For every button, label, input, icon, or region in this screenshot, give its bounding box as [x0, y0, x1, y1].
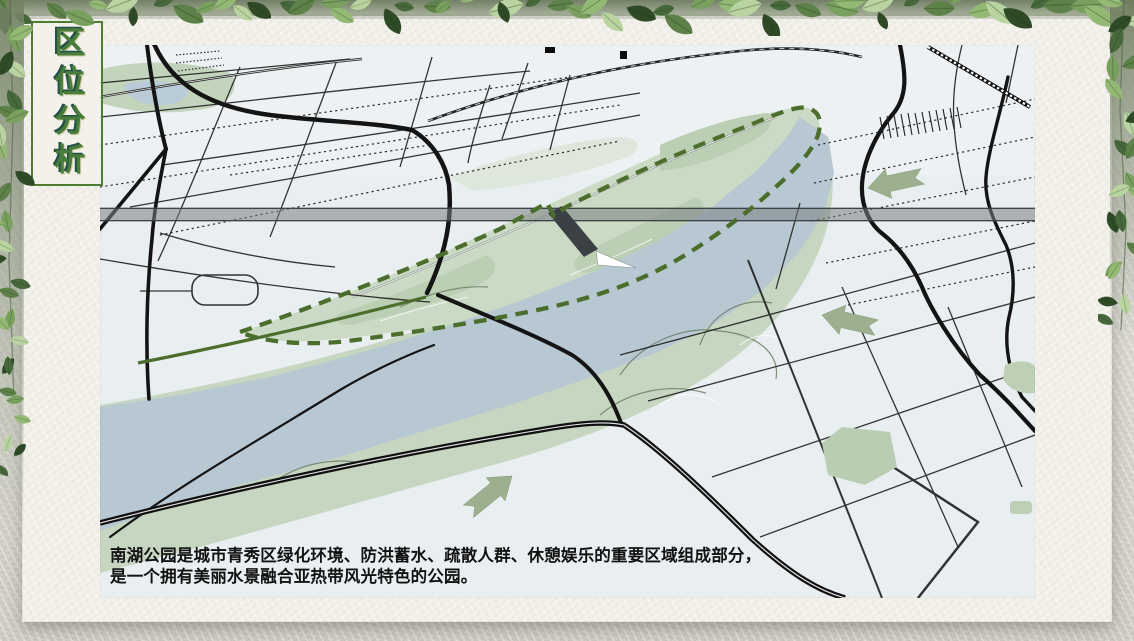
caption: 南湖公园是城市青秀区绿化环境、防洪蓄水、疏散人群、休憩娱乐的重要区域组成部分， … [110, 546, 800, 587]
title-box: 区位分析 [31, 21, 103, 186]
building-block [545, 47, 555, 53]
slide: 南湖公园是城市青秀区绿化环境、防洪蓄水、疏散人群、休憩娱乐的重要区域组成部分， … [0, 0, 1134, 641]
page-title: 区位分析 [45, 26, 90, 182]
caption-line-2: 是一个拥有美丽水景融合亚热带风光特色的公园。 [110, 567, 800, 588]
city-map: 南湖公园是城市青秀区绿化环境、防洪蓄水、疏散人群、休憩娱乐的重要区域组成部分， … [100, 45, 1035, 598]
caption-line-1: 南湖公园是城市青秀区绿化环境、防洪蓄水、疏散人群、休憩娱乐的重要区域组成部分， [110, 546, 800, 567]
city-map-graphic [100, 45, 1035, 598]
